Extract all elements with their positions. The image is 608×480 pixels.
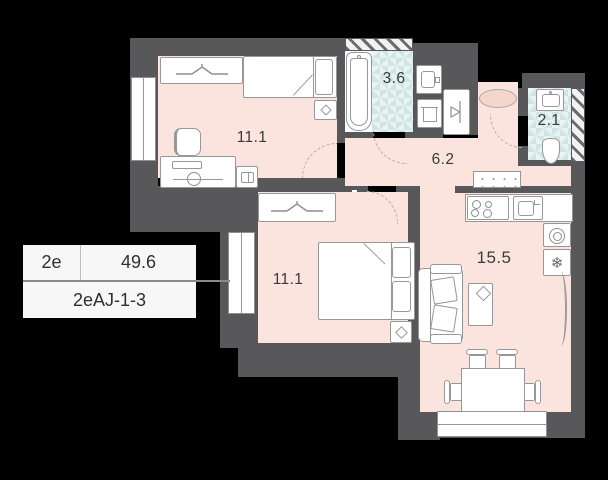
fridge-snowflake-icon: ❄	[543, 249, 571, 276]
wardrobe	[258, 193, 336, 222]
laptop-icon	[172, 161, 202, 169]
wardrobe	[160, 57, 243, 84]
sink-basin	[518, 201, 534, 216]
bed-pillow-divider	[313, 57, 314, 97]
room-area-label: 6.2	[413, 151, 473, 169]
dining-chair-seat	[499, 355, 516, 369]
plan-code-cell: 2eAJ-1-3	[23, 282, 196, 318]
kitchen-sink-icon	[513, 196, 543, 220]
burner	[472, 200, 481, 209]
pouf	[479, 89, 517, 108]
book-spine	[248, 173, 249, 182]
decor-diamond	[395, 326, 408, 339]
apartment-floor-plan: 11.1 3.6 6.2 2.1 11.1	[0, 0, 608, 480]
book-shelf	[236, 166, 258, 188]
window-bedroom-left	[228, 232, 255, 314]
room-area-label: 15.5	[464, 248, 524, 268]
dining-chair-back	[535, 380, 541, 404]
basin-rim	[421, 107, 438, 108]
room-area-label: 3.6	[364, 70, 424, 88]
flat-type-cell: 2e	[23, 245, 80, 280]
dining-table	[461, 368, 525, 412]
nightstand	[390, 321, 412, 343]
sink-faucet	[435, 77, 440, 83]
wall-segment	[238, 343, 410, 377]
hanger-icon	[267, 200, 327, 216]
wall-segment	[522, 73, 585, 89]
shaft-hatch	[345, 38, 413, 51]
hall-closet	[443, 89, 470, 135]
laundry-basin-icon	[417, 99, 442, 128]
pillow	[392, 247, 411, 278]
window-pane-divider	[241, 233, 242, 313]
room-area-label: 11.1	[258, 271, 318, 289]
sofa-cushion	[430, 276, 458, 304]
floor-hallway-east	[518, 166, 571, 186]
desk	[160, 156, 236, 188]
wall-segment	[130, 38, 345, 58]
washing-machine-drum-icon	[543, 223, 571, 247]
wc-sink-icon	[536, 89, 564, 111]
burner	[471, 209, 479, 217]
window-living	[437, 411, 547, 437]
sofa-armrest	[430, 264, 462, 274]
floor-bathroom-tile	[372, 50, 413, 132]
burner	[483, 209, 492, 218]
wall-segment	[250, 178, 345, 192]
desk-chair	[174, 128, 201, 156]
book-icon	[241, 172, 254, 183]
wall-segment	[130, 186, 258, 232]
window-pane-divider	[438, 424, 546, 425]
sofa-cushion	[430, 304, 458, 332]
window-bedroom-top	[131, 77, 156, 161]
room-area-label: 11.1	[222, 129, 282, 147]
bathtub-icon	[346, 52, 372, 131]
hob-burners-icon	[467, 196, 509, 220]
sink-faucet	[534, 200, 540, 205]
bathtub-inner	[350, 58, 368, 126]
pillow	[315, 59, 333, 95]
desk-lamp-arm	[173, 179, 223, 180]
bathtub-faucet	[357, 55, 361, 59]
basin-shape	[423, 108, 437, 122]
sink-basin	[542, 94, 560, 107]
coat-hook-icon	[448, 99, 466, 125]
decor-diamond	[320, 104, 331, 115]
window-pane-divider	[143, 78, 144, 160]
hanger-icon	[172, 63, 232, 79]
room-area-label: 2.1	[519, 112, 579, 130]
sink-faucet	[549, 91, 552, 94]
drum-inner	[553, 232, 562, 241]
nightstand	[314, 100, 337, 120]
wall-segment	[337, 50, 345, 143]
area-total-cell: 49.6	[80, 245, 196, 280]
burner	[485, 201, 492, 208]
doormat	[473, 171, 521, 188]
dining-chair-seat	[469, 355, 486, 369]
sofa-armrest	[430, 334, 462, 344]
pillow	[392, 281, 411, 312]
